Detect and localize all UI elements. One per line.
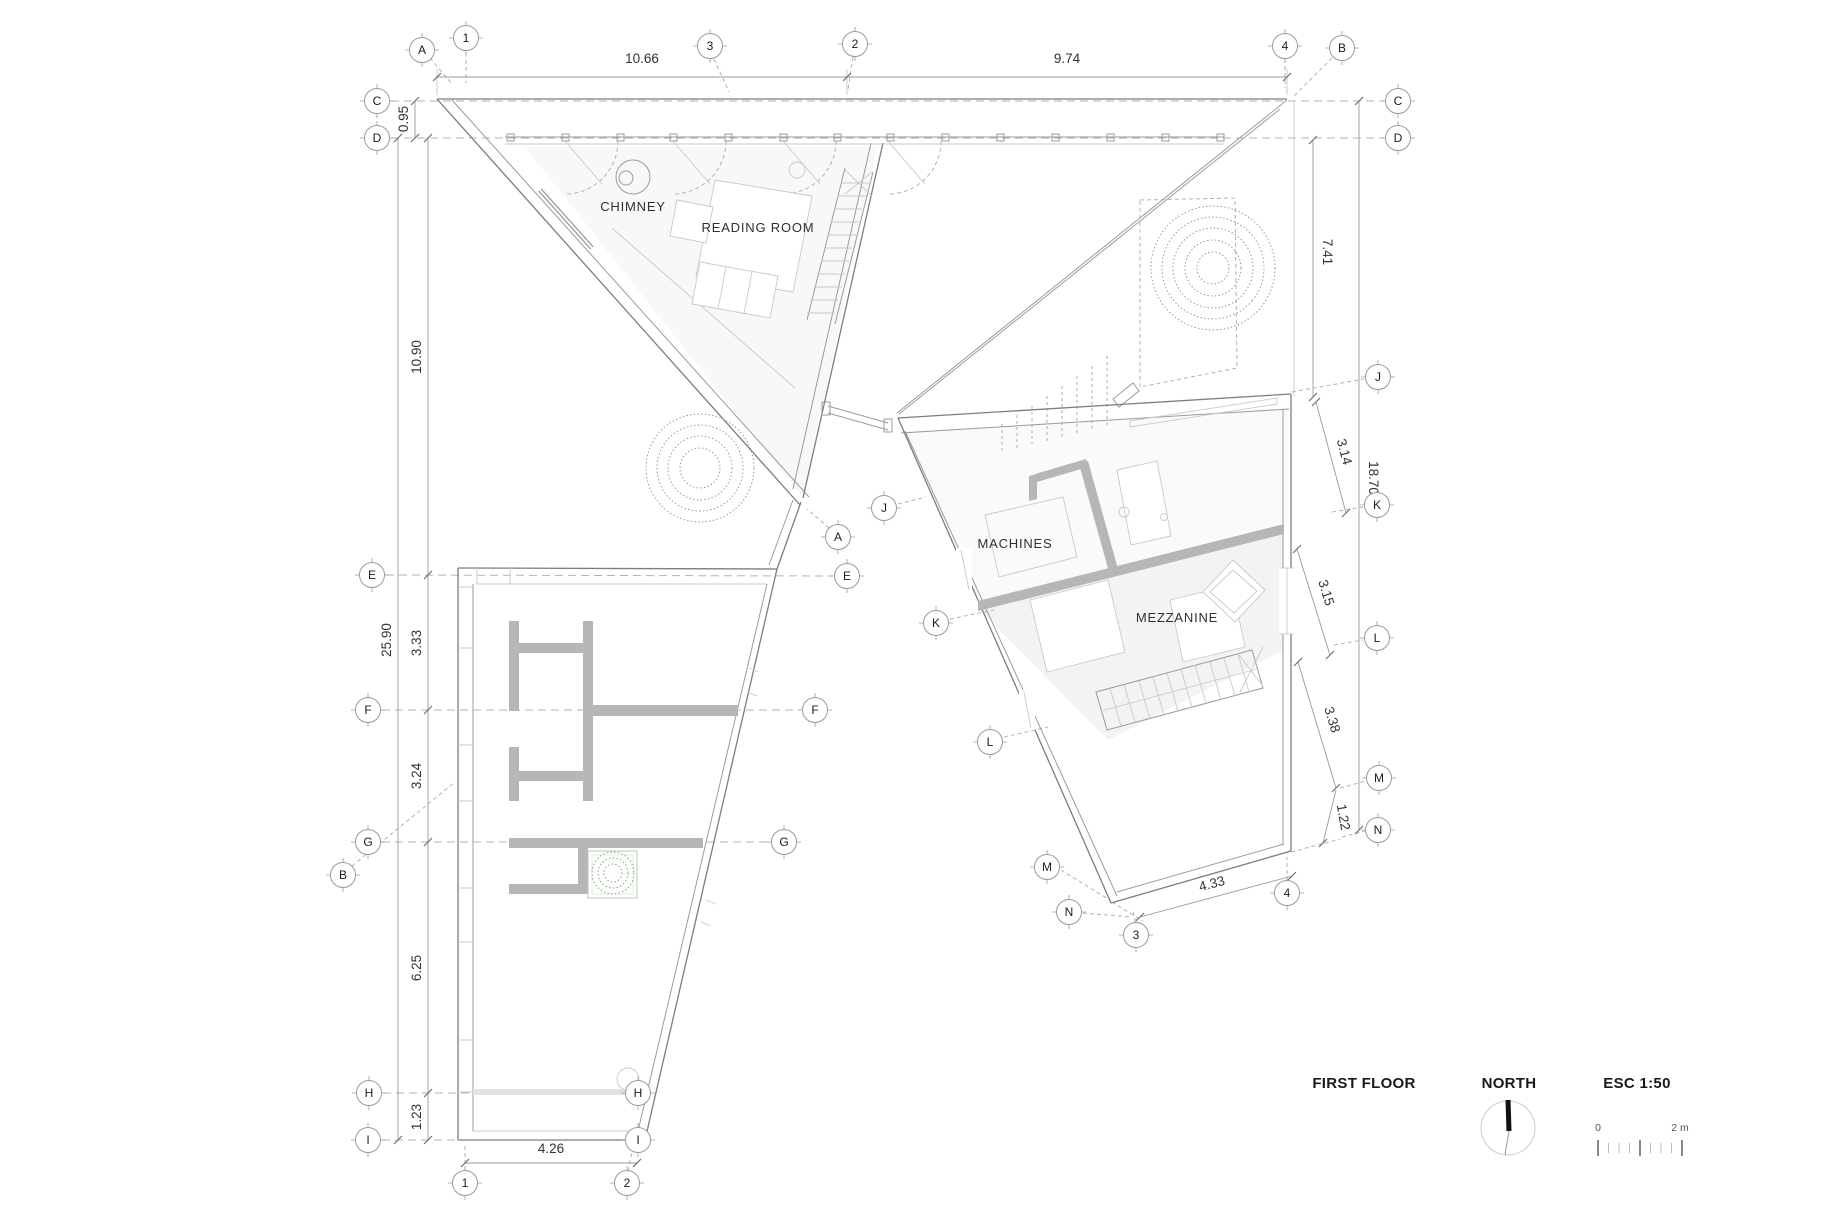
floor-plan-page: CHIMNEY READING ROOM [0,0,1840,1226]
grid-bubble-4-top: 4 [1268,29,1302,63]
dim-top-left: 10.66 [625,51,659,66]
floor-title: FIRST FLOOR [1312,1075,1415,1092]
svg-text:H: H [634,1086,643,1100]
grid-bubble-n-center: N [1052,895,1086,929]
room-label-reading-room: READING ROOM [702,220,815,235]
grid-bubble-k-center: K [919,606,953,640]
dim-left-h-i: 1.23 [409,1104,424,1130]
grid-bubble-3-bottom: 43 [1119,918,1153,952]
planter-box [588,851,637,898]
svg-text:3: 3 [707,39,714,53]
svg-text:A: A [834,530,842,544]
dim-left-d-e: 10.90 [409,340,424,374]
grid-bubble-e-center: E [830,559,864,593]
dim-left-total: 25.90 [379,623,394,657]
svg-text:C: C [1394,94,1403,108]
dim-right-m-n: 1.22 [1334,803,1353,831]
svg-text:4: 4 [1282,39,1289,53]
dim-top-right: 9.74 [1054,51,1081,66]
grid-bubble-g-center: G [767,825,801,859]
connector-bridge [822,402,892,432]
grid-bubble-e-left: E [355,558,389,592]
svg-text:1: 1 [462,1176,469,1190]
svg-text:B: B [1338,41,1346,55]
dim-left-g-h: 6.25 [409,955,424,981]
dim-bottom-span: 4.26 [538,1141,564,1156]
grid-bubble-1-bottom: 1 [448,1166,482,1200]
svg-text:C: C [373,94,382,108]
dim-right-l-m: 3.38 [1321,705,1343,735]
dim-right-k-l: 3.15 [1315,578,1337,608]
svg-text:H: H [365,1086,374,1100]
floor-plan-drawing: CHIMNEY READING ROOM [0,0,1840,1226]
svg-text:D: D [1394,131,1403,145]
svg-text:M: M [1374,771,1384,785]
svg-text:3: 3 [1133,928,1140,942]
svg-text:2: 2 [852,37,859,51]
grid-bubble-h-left: H [352,1076,386,1110]
dim-right-d-j: 7.41 [1320,239,1335,265]
svg-text:4: 4 [1284,886,1291,900]
grid-bubble-f-center: F [798,693,832,727]
grid-bubble-g-left: G [351,825,385,859]
room-label-machines: MACHINES [977,536,1052,551]
grid-bubble-n-right: N [1361,813,1395,847]
svg-text:D: D [373,131,382,145]
scale-bar-start: 0 [1595,1122,1601,1134]
svg-text:B: B [339,868,347,882]
grid-bubble-1-top: 1 [449,21,483,55]
grid-bubble-d-left: D [360,121,394,155]
grid-bubble-l-center: L [973,725,1007,759]
grid-bubble-c-right: C [1381,84,1415,118]
svg-text:F: F [364,703,371,717]
grid-bubble-4-bottom: 4 [1270,876,1304,910]
grid-bubble-j-center: J [867,491,901,525]
svg-text:K: K [932,616,940,630]
svg-text:I: I [636,1133,639,1147]
grid-bubble-m-right: M [1362,761,1396,795]
dim-left-e-f: 3.33 [409,630,424,656]
tree-medium [641,409,758,526]
svg-text:1: 1 [463,31,470,45]
beam [473,1089,635,1095]
grid-bubble-d-right: D [1381,121,1415,155]
svg-text:E: E [368,568,376,582]
room-label-chimney: CHIMNEY [600,199,666,214]
tree-large [1140,196,1285,387]
scale-bar-end: 2 m [1671,1122,1689,1134]
svg-text:G: G [363,835,372,849]
grid-bubble-3-top: 3 [693,29,727,63]
north-label: NORTH [1482,1075,1537,1092]
svg-text:N: N [1065,905,1074,919]
room-label-mezzanine: MEZZANINE [1136,610,1218,625]
scale-bar: 0 2 m [1595,1122,1689,1156]
dim-right-j-k: 3.14 [1334,437,1355,467]
svg-text:I: I [366,1133,369,1147]
svg-text:J: J [881,501,887,515]
title-block: FIRST FLOOR NORTH ESC 1:50 0 2 m [1312,1075,1689,1156]
svg-text:E: E [843,569,851,583]
svg-text:G: G [779,835,788,849]
grid-bubble-k-right: K [1360,488,1394,522]
lower-building [458,568,777,1140]
svg-text:K: K [1373,498,1381,512]
svg-text:L: L [1374,631,1381,645]
grid-bubble-a-top: A [405,33,439,67]
svg-text:L: L [987,735,994,749]
svg-text:M: M [1042,860,1052,874]
svg-text:F: F [811,703,818,717]
grid-bubble-f-left: F [351,693,385,727]
grid-bubble-2-top: 2 [838,27,872,61]
grid-bubble-m-center: M [1030,850,1064,884]
grid-bubble-a-center: A [821,520,855,554]
grid-bubble-2-bottom: 2 [610,1166,644,1200]
svg-text:J: J [1375,370,1381,384]
svg-text:A: A [418,43,426,57]
dim-left-f-g: 3.24 [409,762,424,789]
grid-bubble-b-left: B [326,858,360,892]
grid-bubble-i-left: I [351,1123,385,1157]
grid-bubble-c-left: C [360,84,394,118]
grid-bubble-j-right: J [1361,360,1395,394]
dim-right-total: 18.70 [1366,461,1381,495]
scale-label: ESC 1:50 [1603,1075,1670,1092]
north-compass-icon [1481,1100,1535,1155]
svg-text:2: 2 [624,1176,631,1190]
svg-text:N: N [1374,823,1383,837]
dim-left-c-d: 0.95 [396,106,411,132]
grid-bubble-i-center: I [621,1123,655,1157]
grid-bubble-l-right: L [1360,621,1394,655]
